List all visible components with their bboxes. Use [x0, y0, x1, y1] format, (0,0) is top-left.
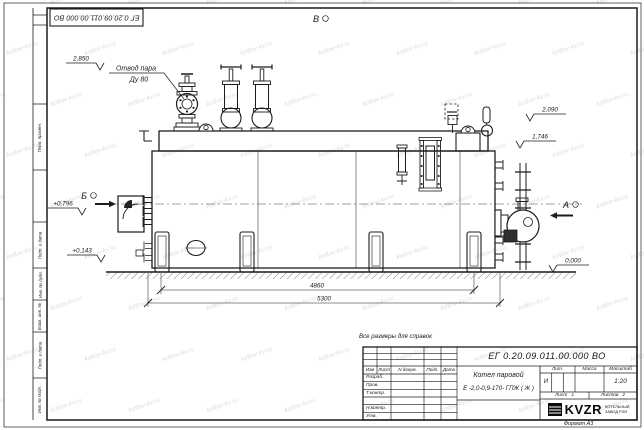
frame-col-podp-data-2: Подп. и дата — [33, 332, 47, 378]
view-markers: Б А В — [81, 14, 578, 219]
frame-col-inv-podl: Инв. № подл. — [33, 378, 47, 420]
view-a-label: А — [562, 200, 569, 210]
reference-note: Все размеры для справок — [348, 333, 443, 342]
frame-col-inv-dubl: Инв. № дубл. — [33, 268, 47, 300]
front-door — [118, 131, 152, 263]
scale-header: Масштаб — [604, 366, 637, 373]
safety-valve-2 — [251, 65, 273, 132]
elevation-0143: +0,143 — [72, 248, 92, 255]
role-nkontr: Н.контр. — [364, 405, 393, 413]
role-razrab: Разраб. — [364, 374, 393, 382]
steam-outlet-label: Отвод пара Ду 80 — [109, 65, 184, 100]
top-corner-stamp: ЕГ 0.20.09.011.00.000 ВО — [50, 9, 143, 26]
role-tkontr: Т.контр. — [364, 389, 393, 397]
mass-header: Масса — [575, 366, 604, 373]
steam-outlet-text: Отвод пара — [116, 65, 156, 73]
frame-col-podp-data-1: Подп. и дата — [33, 222, 47, 268]
safety-valve-1 — [220, 65, 242, 132]
lifting-lug — [199, 124, 213, 131]
view-b-arrow — [109, 201, 116, 207]
burner — [495, 198, 539, 242]
lit-value: И — [540, 373, 552, 392]
elevation-labels: 2,850 2,090 1,746 0,000 +0,796 +0,143 — [53, 56, 581, 265]
elevation-1746: 1,746 — [532, 134, 548, 141]
dimension-4860: 4860 — [310, 283, 325, 290]
kvzr-logo-text: KVZR — [565, 403, 602, 417]
role-utv: Утв. — [364, 412, 393, 420]
view-a-arrow — [550, 212, 557, 218]
steam-outlet-valve — [174, 74, 200, 131]
format-note: Формат А3 — [520, 421, 637, 429]
elevation-0000: 0,000 — [565, 258, 581, 265]
lit-header: Лит. — [540, 366, 575, 373]
frame-col-perv-primen: Перв. примен. — [33, 104, 47, 170]
sheets-cell: Листов2 — [589, 392, 637, 399]
col-list: Лист — [377, 366, 391, 374]
ground-line — [106, 272, 576, 279]
kvzr-logo-subtext: КОТЕЛЬНЫЙ ЗАВОД РЭП — [605, 405, 629, 414]
role-prov: Пров. — [364, 382, 393, 390]
drum-end-fittings — [445, 104, 493, 151]
scale-value: 1:20 — [604, 373, 637, 392]
elevation-2090: 2,090 — [541, 107, 558, 114]
col-doc: N докум. — [391, 366, 424, 374]
col-podp: Подп. — [424, 366, 441, 374]
col-data: Дата — [441, 366, 457, 374]
view-v-label: В — [313, 14, 319, 24]
titleblock-doc-number: ЕГ 0.20.09.011.00.000 ВО — [457, 348, 637, 365]
elevation-0796: +0,796 — [53, 201, 73, 208]
drawing-sheet: kotlov-kv.rukotlov-kv.rukotlov-kv.rukotl… — [0, 0, 644, 430]
kvzr-logo-icon — [548, 403, 562, 416]
boiler-body — [152, 131, 495, 268]
col-izm: Изм — [363, 366, 377, 374]
frame-col-vzam-inv: Взам. инв. № — [33, 300, 47, 332]
steam-outlet-dn: Ду 80 — [129, 77, 148, 84]
kvzr-logo: KVZR КОТЕЛЬНЫЙ ЗАВОД РЭП — [541, 400, 636, 419]
view-b-label: Б — [81, 191, 87, 201]
dimension-5300: 5300 — [317, 296, 332, 303]
elevation-2850: 2,850 — [72, 56, 89, 63]
top-corner-stamp-text: ЕГ 0.20.09.011.00.000 ВО — [54, 14, 140, 22]
titleblock-product-name-1: Котел паровой — [457, 369, 540, 382]
titleblock-product-name-2: Е -2,0-0,9-170- ГПЖ ( Ж ) — [457, 382, 540, 396]
sheet-cell: Лист1 — [540, 392, 589, 399]
level-gauge-column — [419, 138, 442, 192]
